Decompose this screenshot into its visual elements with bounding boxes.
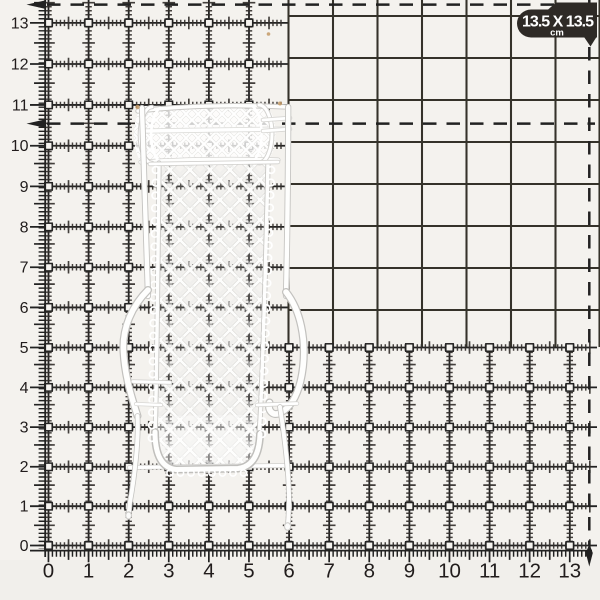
svg-text:5: 5 xyxy=(20,340,29,357)
svg-text:3: 3 xyxy=(20,420,29,437)
svg-text:1: 1 xyxy=(83,560,94,583)
svg-text:8: 8 xyxy=(20,219,29,236)
svg-text:11: 11 xyxy=(479,560,500,583)
svg-text:cm: cm xyxy=(550,28,564,39)
svg-text:10: 10 xyxy=(438,560,461,583)
svg-text:0: 0 xyxy=(43,560,54,583)
svg-text:6: 6 xyxy=(283,560,294,583)
svg-text:7: 7 xyxy=(323,560,334,583)
svg-text:0: 0 xyxy=(20,538,29,555)
svg-text:13: 13 xyxy=(11,15,29,32)
svg-text:4: 4 xyxy=(20,380,29,397)
svg-text:7: 7 xyxy=(20,260,29,277)
svg-text:2: 2 xyxy=(20,459,29,476)
svg-text:1: 1 xyxy=(20,499,29,516)
svg-text:11: 11 xyxy=(12,97,29,114)
svg-text:2: 2 xyxy=(123,560,134,583)
svg-text:9: 9 xyxy=(404,560,415,583)
svg-text:5: 5 xyxy=(243,560,254,583)
svg-text:6: 6 xyxy=(20,300,29,317)
svg-text:9: 9 xyxy=(20,179,29,196)
svg-text:8: 8 xyxy=(364,560,375,583)
svg-text:13: 13 xyxy=(558,560,581,583)
svg-text:4: 4 xyxy=(203,560,214,583)
svg-text:3: 3 xyxy=(163,560,174,583)
svg-text:12: 12 xyxy=(11,57,29,74)
svg-text:10: 10 xyxy=(11,138,29,155)
svg-text:12: 12 xyxy=(518,560,541,583)
